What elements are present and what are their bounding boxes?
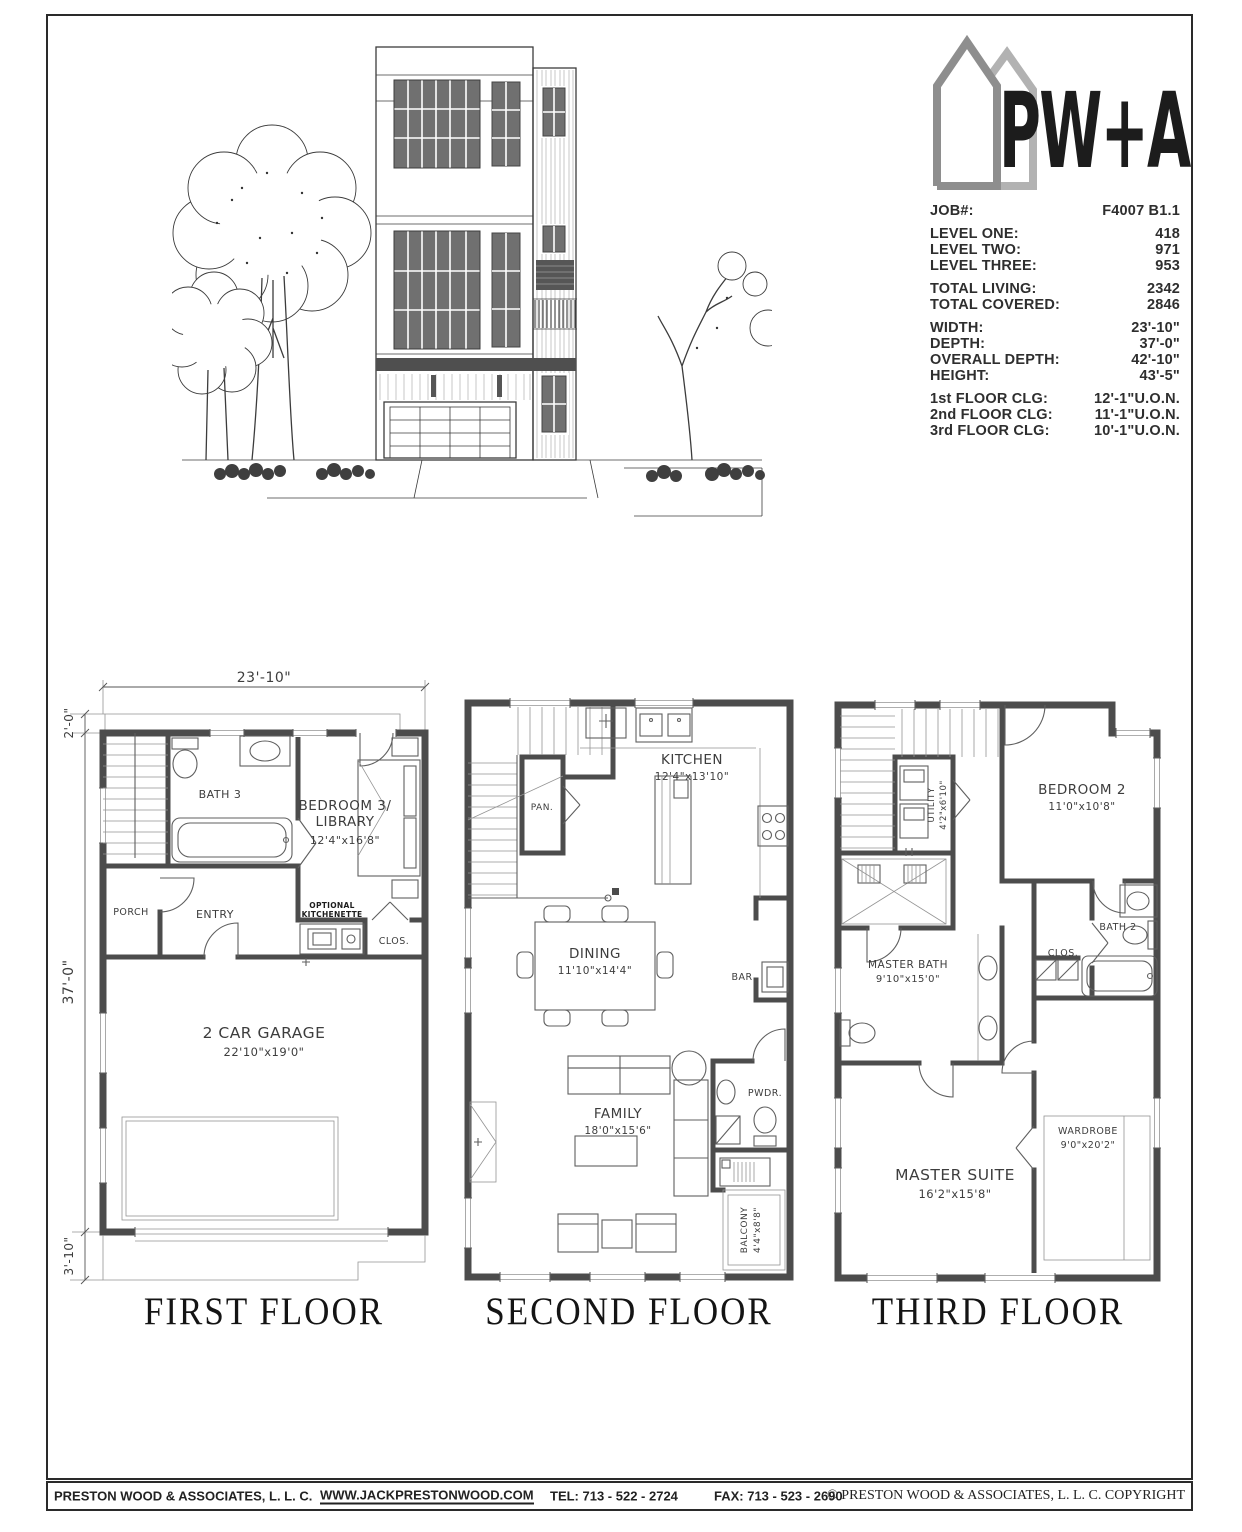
window-openings: [464, 698, 725, 1282]
job-row: JOB#:F4007 B1.1: [930, 203, 1180, 219]
wardrobe-shelving: [1044, 1116, 1150, 1260]
staircase: [840, 709, 998, 848]
svg-text:LIBRARY: LIBRARY: [315, 814, 374, 830]
website-link: WWW.JACKPRESTONWOOD.COM: [320, 1488, 534, 1505]
phone-number: TEL: 713 - 522 - 2724: [550, 1489, 678, 1504]
small-tree-icon: [172, 272, 272, 460]
staircase: [103, 733, 168, 858]
svg-text:4'2"x6'10": 4'2"x6'10": [939, 780, 949, 830]
job-row: OVERALL DEPTH:42'-10": [930, 352, 1180, 368]
front-elevation-drawing: [172, 28, 772, 523]
svg-text:11'0"x10'8": 11'0"x10'8": [1048, 801, 1115, 813]
job-row: 3rd FLOOR CLG:10'-1"U.O.N.: [930, 423, 1180, 439]
kitchen-label: KITCHEN: [661, 752, 723, 768]
svg-text:4'4"x8'8": 4'4"x8'8": [753, 1207, 763, 1253]
garage-door: [384, 402, 516, 458]
job-row: 2nd FLOOR CLG:11'-1"U.O.N.: [930, 407, 1180, 423]
svg-text:23'-10": 23'-10": [237, 670, 291, 686]
svg-text:11'10"x14'4": 11'10"x14'4": [558, 965, 632, 977]
third-floor-plan: UTILITY 4'2"x6'10" BEDROOM 2 11'0"x10'8"…: [820, 668, 1200, 1298]
brand-text: PW+A: [999, 70, 1191, 191]
company-logo: PW+A: [925, 28, 1195, 198]
job-row: TOTAL COVERED:2846: [930, 297, 1180, 313]
utility-label: UTILITY: [927, 787, 937, 822]
svg-text:3'-10": 3'-10": [62, 1236, 76, 1275]
master-bath-fixtures: [840, 934, 997, 1061]
company-name: PRESTON WOOD & ASSOCIATES, L. L. C.: [54, 1489, 312, 1504]
bedroom2-label: BEDROOM 2: [1038, 782, 1126, 798]
job-row: LEVEL ONE:418: [930, 226, 1180, 242]
dining-label: DINING: [569, 946, 621, 962]
svg-text:12'4"x13'10": 12'4"x13'10": [655, 771, 729, 783]
pantry-door: [563, 786, 580, 824]
family-label: FAMILY: [594, 1106, 643, 1122]
fax-number: FAX: 713 - 523 - 2690: [714, 1489, 843, 1504]
kitchenette-counter: [300, 924, 364, 966]
room-labels: KITCHEN 12'4"x13'10" PAN. DINING 11'10"x…: [531, 752, 782, 1253]
job-row: WIDTH:23'-10": [930, 320, 1180, 336]
svg-text:16'2"x15'8": 16'2"x15'8": [918, 1187, 991, 1201]
walls: [468, 703, 790, 1277]
dimension-lines: 23'-10" 2'-0" 37'-0" 3'-10": [61, 670, 429, 1284]
job-row: LEVEL THREE:953: [930, 258, 1180, 274]
second-floor-plan: KITCHEN 12'4"x13'10" PAN. DINING 11'10"x…: [440, 668, 820, 1298]
balcony-label: BALCONY: [740, 1207, 750, 1253]
porch-label: PORCH: [113, 907, 149, 918]
powder-label: PWDR.: [748, 1088, 782, 1099]
svg-text:KITCHENETTE: KITCHENETTE: [302, 910, 363, 919]
front-house-icon: [937, 42, 997, 186]
family-furniture: [558, 1051, 708, 1252]
master-bath-label: MASTER BATH: [868, 959, 948, 971]
job-info-table: JOB#:F4007 B1.1 LEVEL ONE:418 LEVEL TWO:…: [930, 203, 1180, 439]
svg-text:9'10"x15'0": 9'10"x15'0": [876, 974, 940, 985]
second-floor-title: SECOND FLOOR: [429, 1289, 829, 1338]
post: [612, 888, 619, 895]
laundry-fixture: [720, 1158, 770, 1186]
wardrobe-label: WARDROBE: [1058, 1126, 1118, 1137]
job-row: HEIGHT:43'-5": [930, 368, 1180, 384]
first-floor-plan: 23'-10" 2'-0" 37'-0" 3'-10": [60, 668, 440, 1298]
master-suite-label: MASTER SUITE: [895, 1166, 1015, 1184]
master-closet: [842, 859, 946, 924]
closet-label: CLOS.: [379, 936, 410, 947]
job-label: JOB#:: [930, 203, 974, 219]
svg-text:18'0"x15'6": 18'0"x15'6": [584, 1125, 651, 1137]
doors: [867, 705, 1125, 1170]
bar-label: BAR: [731, 972, 752, 983]
svg-text:12'4"x16'8": 12'4"x16'8": [310, 834, 380, 847]
svg-text:2'-0": 2'-0": [62, 708, 76, 739]
job-value: F4007 B1.1: [1102, 203, 1180, 219]
first-floor-title: FIRST FLOOR: [64, 1289, 464, 1338]
bar-fixture: [762, 962, 788, 992]
job-row: TOTAL LIVING:2342: [930, 281, 1180, 297]
svg-text:9'0"x20'2": 9'0"x20'2": [1061, 1140, 1116, 1151]
bedroom3-label: BEDROOM 3/: [299, 798, 392, 814]
house-facade: [376, 47, 577, 460]
job-row: DEPTH:37'-0": [930, 336, 1180, 352]
job-row: 1st FLOOR CLG:12'-1"U.O.N.: [930, 391, 1180, 407]
copyright-notice: © PRESTON WOOD & ASSOCIATES, L. L. C. CO…: [827, 1488, 1185, 1504]
pantry-label: PAN.: [531, 803, 554, 813]
svg-text:22'10"x19'0": 22'10"x19'0": [224, 1045, 305, 1059]
bushes-icon: [214, 463, 765, 482]
closet-label: CLOS.: [1048, 948, 1079, 959]
bath2-fixtures: [1036, 885, 1157, 996]
bath2-label: BATH 2: [1099, 922, 1136, 933]
floorplan-sheet: { "logo": {"brand": "PW+A", "icon": "twi…: [0, 0, 1242, 1532]
bare-tree-icon: [658, 252, 772, 460]
garage-pad: [103, 1117, 425, 1280]
bath3-label: BATH 3: [199, 788, 242, 801]
kitchenette-label: OPTIONAL: [309, 901, 354, 910]
fireplace: [470, 1102, 496, 1182]
job-row: LEVEL TWO:971: [930, 242, 1180, 258]
entry-label: ENTRY: [196, 908, 234, 921]
svg-text:37'-0": 37'-0": [61, 959, 77, 1004]
third-floor-title: THIRD FLOOR: [798, 1289, 1198, 1338]
footer-bar: PRESTON WOOD & ASSOCIATES, L. L. C. WWW.…: [46, 1481, 1193, 1511]
garage-label: 2 CAR GARAGE: [203, 1024, 326, 1042]
